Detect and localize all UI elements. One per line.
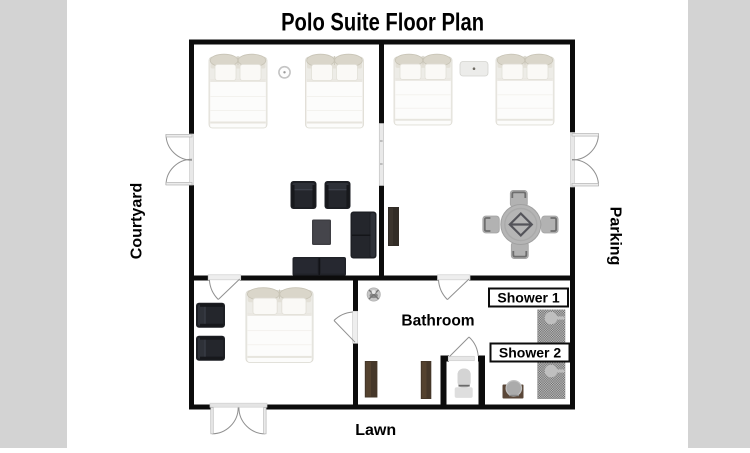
svg-text:Shower 2: Shower 2 <box>499 345 561 361</box>
svg-text:Parking: Parking <box>607 207 624 266</box>
svg-text:Courtyard: Courtyard <box>129 183 146 259</box>
svg-text:Shower 1: Shower 1 <box>497 290 559 306</box>
svg-text:Polo Suite Floor Plan: Polo Suite Floor Plan <box>281 9 484 37</box>
svg-text:Bathroom: Bathroom <box>401 313 474 330</box>
svg-text:Lawn: Lawn <box>355 422 396 439</box>
